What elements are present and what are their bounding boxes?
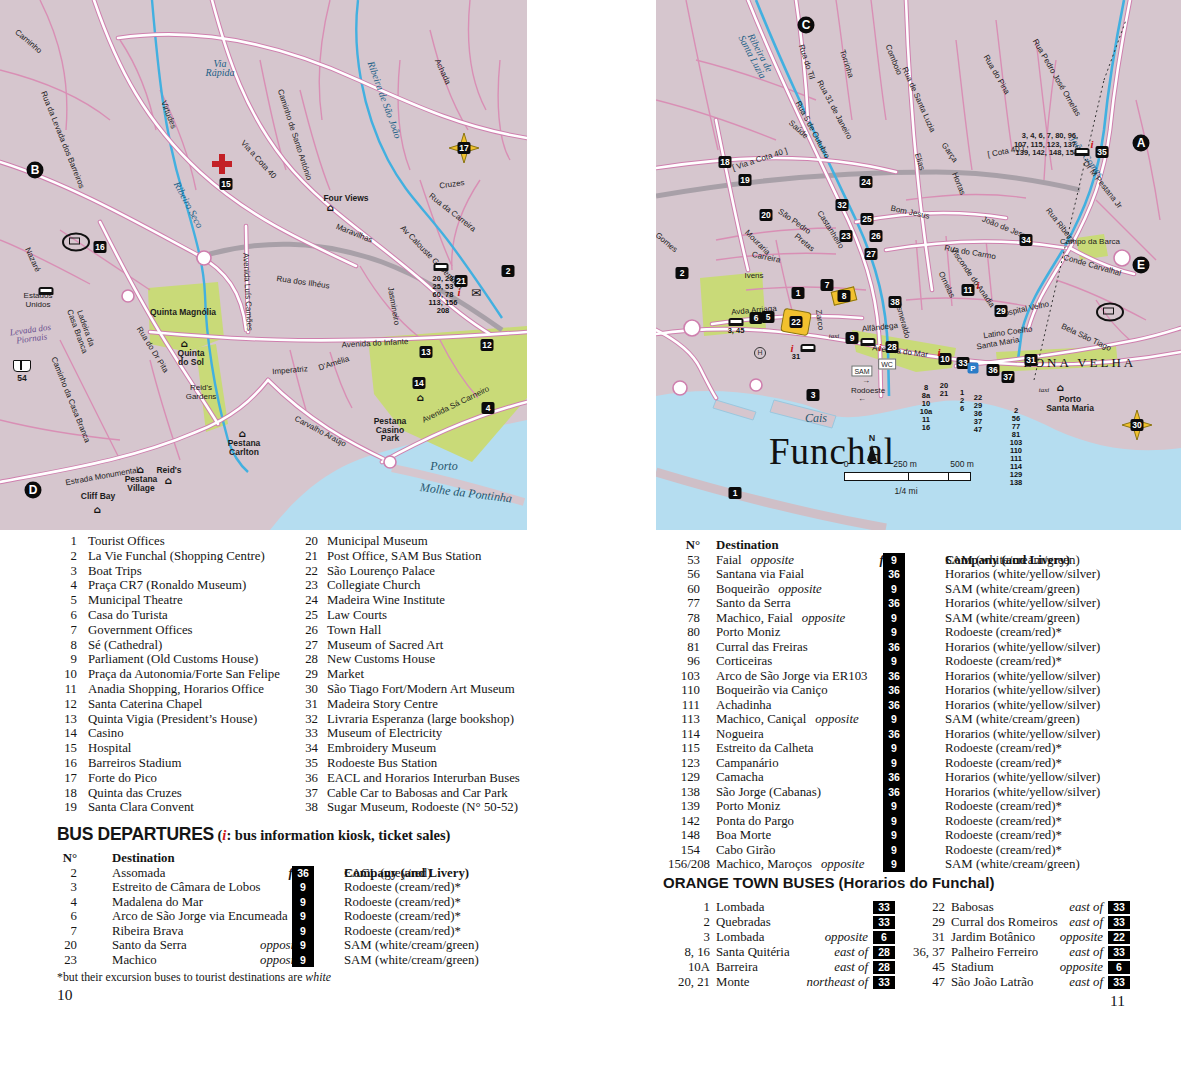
route-number: 31 <box>898 930 945 945</box>
table-row: 31Jardim Botânicoopposite22 <box>898 930 1138 945</box>
subtitle-post: : bus information kiosk, ticket sales) <box>226 827 450 843</box>
bus-departures-title: BUS DEPARTURES <box>57 824 214 844</box>
destination: Barreiraeast of <box>716 960 873 975</box>
table-row: 2Quebradas33 <box>663 915 895 930</box>
stop-badge: 9 <box>883 582 905 597</box>
site-marker: 1 <box>729 487 742 499</box>
site-marker: 8 <box>838 290 851 302</box>
destination: Stadiumopposite <box>951 960 1108 975</box>
table-row: 138São Jorge (Cabanas)36Horarios (white/… <box>668 785 1138 800</box>
site-marker: 13 <box>420 346 433 358</box>
table-row: 53Faialopposite9SAM (white/cream/green) <box>668 553 1138 568</box>
site-marker: 21 <box>455 275 468 287</box>
legend-item: 14Casino <box>57 726 295 741</box>
position-note <box>836 857 883 872</box>
info-kiosk-icon: i <box>1090 139 1093 150</box>
guidebook-spread: { "accent_colors":{"road_casing":"#cf7fa… <box>0 0 1181 1078</box>
route-number: 77 <box>668 596 700 611</box>
legend-number: 27 <box>296 638 318 653</box>
site-marker: 23 <box>840 230 853 242</box>
company-livery: Rodoeste (cream/red)* <box>945 814 1138 829</box>
legend-label: Praça CR7 (Ronaldo Museum) <box>88 578 295 593</box>
route-number: 115 <box>668 741 700 756</box>
legend-number: 33 <box>296 726 318 741</box>
table-row: 60Boqueirãoopposite9SAM (white/cream/gre… <box>668 582 1138 597</box>
table-row: 4Madalena do Mar9Rodoeste (cream/red)* <box>57 895 517 910</box>
table-row: 156/208Machico, Maroçosopposite9SAM (whi… <box>668 857 1138 872</box>
legend-item: 4Praça CR7 (Ronaldo Museum) <box>57 578 295 593</box>
orange-buses-right: 22Babosaseast of3329Curral dos Romeirose… <box>898 900 1138 990</box>
destination: Santo da Serra <box>716 596 836 611</box>
site-marker: 3 <box>807 389 820 401</box>
position-note <box>836 640 883 655</box>
map-west-markers: 1516BD17221i✉1312144⌂⌂⌂⌂⌂⌂⌂ <box>0 0 527 530</box>
route-number: 53 <box>668 553 700 568</box>
site-marker: 9 <box>846 332 859 344</box>
north-arrow <box>867 445 877 461</box>
table-row: 80Porto Moniz9Rodoeste (cream/red)* <box>668 625 1138 640</box>
destination: Curral das Freiras <box>716 640 836 655</box>
legend-label: Town Hall <box>327 623 536 638</box>
legend-number: 17 <box>57 771 77 786</box>
position-note: east of <box>1069 945 1108 960</box>
table-row: 111Achadinha36Horarios (white/yellow/sil… <box>668 698 1138 713</box>
legend-label: Santa Clara Convent <box>88 800 295 815</box>
table-row: 23Machicoopposite9SAM (white/cream/green… <box>57 953 517 968</box>
table-row: 148Boa Morte9Rodoeste (cream/red)* <box>668 828 1138 843</box>
legend-number: 23 <box>296 578 318 593</box>
legend-label: Madeira Story Centre <box>327 697 536 712</box>
legend-number: 26 <box>296 623 318 638</box>
stop-badge: 33 <box>873 901 895 914</box>
site-marker: 14 <box>413 377 426 389</box>
route-number: 20, 21 <box>663 975 710 990</box>
position-note <box>836 712 883 727</box>
legend-label: Embroidery Museum <box>327 741 536 756</box>
legend-item: 38Sugar Museum, Rodoeste (N° 50-52) <box>296 800 536 815</box>
position-note <box>836 625 883 640</box>
legend-item: 8Sé (Cathedral) <box>57 638 295 653</box>
company-livery: Rodoeste (cream/red)* <box>344 880 517 895</box>
route-number: 4 <box>57 895 77 910</box>
bus-rows: 53Faialopposite9SAM (white/cream/green)5… <box>668 553 1138 872</box>
site-marker: 24 <box>860 176 873 188</box>
table-row: 10ABarreiraeast of28 <box>663 960 895 975</box>
destination: Machico <box>112 953 260 968</box>
legend-label: Sé (Cathedral) <box>88 638 295 653</box>
company-livery: Rodoeste (cream/red)* <box>344 895 517 910</box>
info-kiosk-icon: i <box>457 287 460 298</box>
destination: Santana via Faial <box>716 567 836 582</box>
hotel-icon: ⌂ <box>238 429 245 439</box>
position-note <box>836 669 883 684</box>
legend-number: 11 <box>57 682 77 697</box>
legend-item: 36EACL and Horarios Interurban Buses <box>296 771 536 786</box>
position-note <box>260 924 292 939</box>
position-note <box>836 770 883 785</box>
table-row: 3Estreito de Câmara de Lobos9Rodoeste (c… <box>57 880 517 895</box>
legend-item: 13Quinta Vigia (President’s House) <box>57 712 295 727</box>
route-number: 2 <box>57 866 77 881</box>
position-note <box>836 741 883 756</box>
legend-label: Boat Trips <box>88 564 295 579</box>
position-note <box>836 698 883 713</box>
stop-badge: 9 <box>883 828 905 843</box>
destination: Faialopposite <box>716 553 836 568</box>
company-livery: Horarios (white/yellow/silver) <box>945 698 1138 713</box>
route-number: 80 <box>668 625 700 640</box>
site-marker: 26 <box>870 230 883 242</box>
company-livery: SAM (white/cream/green) <box>344 953 517 968</box>
legend-item: 33Museum of Electricity <box>296 726 536 741</box>
route-number: 29 <box>898 915 945 930</box>
legend-label: New Customs House <box>327 652 536 667</box>
table-header-row: N° Destination from Company (and Livery) <box>57 851 517 866</box>
position-note <box>260 895 292 910</box>
company-livery: SAM (white/cream/green) <box>945 553 1138 568</box>
hotel-icon: ⌂ <box>136 465 143 475</box>
stop-badge: 9 <box>883 611 905 626</box>
stop-badge: 28 <box>873 946 895 959</box>
table-row: 123Campanário9Rodoeste (cream/red)* <box>668 756 1138 771</box>
route-number: 154 <box>668 843 700 858</box>
legend-label: Quinta das Cruzes <box>88 786 295 801</box>
hospital-cross-icon <box>212 154 232 174</box>
orange-buses-left: 1Lombada332Quebradas333Lombadaopposite68… <box>663 900 895 990</box>
site-marker: 7 <box>821 279 834 291</box>
legend-number: 16 <box>57 756 77 771</box>
stop-badge: 6 <box>873 931 895 944</box>
legend-number: 20 <box>296 534 318 549</box>
legend-label: Sugar Museum, Rodoeste (N° 50-52) <box>327 800 536 815</box>
stop-badge: 6 <box>1108 961 1130 974</box>
position-note: opposite <box>1060 960 1108 975</box>
legend-item: 28New Customs House <box>296 652 536 667</box>
legend-number: 34 <box>296 741 318 756</box>
stop-badge: 9 <box>292 895 314 910</box>
route-number: 78 <box>668 611 700 626</box>
stop-badge: 36 <box>883 640 905 655</box>
route-number: 36, 37 <box>898 945 945 960</box>
legend-item: 30São Tiago Fort/Modern Art Museum <box>296 682 536 697</box>
route-number: 20 <box>57 938 77 953</box>
company-livery: EACL (grey/red) <box>344 866 517 881</box>
company-livery: Horarios (white/yellow/silver) <box>945 683 1138 698</box>
map-funchal-centre: Ribeira de Santa LuziaRua do TilTorrinha… <box>656 0 1181 530</box>
position-note <box>260 880 292 895</box>
site-marker: 38 <box>889 296 902 308</box>
stop-badge: 33 <box>1108 901 1130 914</box>
legend-label: Cable Car to Babosas and Car Park <box>327 786 536 801</box>
map-funchal-west: CaminhoRua da Levada dos BarreirosVia Rá… <box>0 0 527 530</box>
table-row: 45Stadiumopposite6 <box>898 960 1138 975</box>
stop-badge: 36 <box>883 785 905 800</box>
company-livery: Rodoeste (cream/red)* <box>344 924 517 939</box>
position-note <box>836 843 883 858</box>
legend-item: 27Museum of Sacred Art <box>296 638 536 653</box>
legend-item: 24Madeira Wine Institute <box>296 593 536 608</box>
stop-badge: 33 <box>873 916 895 929</box>
fort-star-icon: 30 <box>1122 410 1152 440</box>
site-marker: 1 <box>792 287 805 299</box>
scale-bar <box>844 472 971 481</box>
company-livery: Rodoeste (cream/red)* <box>945 625 1138 640</box>
company-livery: Rodoeste (cream/red)* <box>945 843 1138 858</box>
stop-badge: 9 <box>292 909 314 924</box>
position-note: opposite <box>260 953 292 968</box>
hotel-icon: ⌂ <box>416 393 423 403</box>
legend-label: Livraria Esperanza (large bookshop) <box>327 712 536 727</box>
stop-badge: 36 <box>883 669 905 684</box>
destination: Cabo Girão <box>716 843 836 858</box>
grid-letter-marker: D <box>25 482 42 499</box>
legend-label: Casa do Turista <box>88 608 295 623</box>
legend-label: Barreiros Stadium <box>88 756 295 771</box>
stop-badge: 9 <box>883 799 905 814</box>
info-kiosk-icon: i <box>976 280 979 291</box>
destination: Palheiro Ferreiroeast of <box>951 945 1108 960</box>
site-marker: 34 <box>1020 234 1033 246</box>
position-note: east of <box>1069 900 1108 915</box>
legend-label: Law Courts <box>327 608 536 623</box>
col-no: N° <box>57 851 77 866</box>
parking-icon: P <box>968 363 979 374</box>
destination: Machico, Faialopposite <box>716 611 836 626</box>
stop-badge: 9 <box>883 857 905 872</box>
table-row: 96Corticeiras9Rodoeste (cream/red)* <box>668 654 1138 669</box>
bus-stop-icon <box>39 287 54 295</box>
hotel-icon: ⌂ <box>93 505 100 515</box>
legend-label: La Vie Funchal (Shopping Centre) <box>88 549 295 564</box>
table-row: 7Ribeira Brava9Rodoeste (cream/red)* <box>57 924 517 939</box>
stop-badge: 9 <box>883 654 905 669</box>
route-number: 6 <box>57 909 77 924</box>
route-number: 139 <box>668 799 700 814</box>
company-livery: Rodoeste (cream/red)* <box>945 799 1138 814</box>
legend-item: 26Town Hall <box>296 623 536 638</box>
library-icon <box>13 360 31 372</box>
destination: Nogueira <box>716 727 836 742</box>
destination: Madalena do Mar <box>112 895 260 910</box>
stop-badge: 9 <box>883 553 905 568</box>
legend-number: 30 <box>296 682 318 697</box>
stop-badge: 36 <box>883 770 905 785</box>
info-kiosk-icon: i <box>937 347 940 358</box>
post-office-icon: ✉ <box>471 287 481 299</box>
legend-item: 6Casa do Turista <box>57 608 295 623</box>
legend-number: 6 <box>57 608 77 623</box>
site-marker: 2 <box>676 267 689 279</box>
legend-label: Hospital <box>88 741 295 756</box>
site-marker: 27 <box>865 248 878 260</box>
legend-label: Santa Caterina Chapel <box>88 697 295 712</box>
company-livery: SAM (white/cream/green) <box>945 712 1138 727</box>
position-note <box>836 785 883 800</box>
hotel-icon: ⌂ <box>326 203 333 213</box>
legend-number: 36 <box>296 771 318 786</box>
legend-number: 35 <box>296 756 318 771</box>
legend-item: 22São Lourenço Palace <box>296 564 536 579</box>
legend-number: 37 <box>296 786 318 801</box>
legend-number: 2 <box>57 549 77 564</box>
legend-label: Market <box>327 667 536 682</box>
destination: Lombada <box>716 900 873 915</box>
bus-stop-icon <box>1075 148 1090 156</box>
map-centre-markers: CAE18192032242523262734i3521783822659i28… <box>656 0 1181 530</box>
legend-label: Collegiate Church <box>327 578 536 593</box>
info-kiosk-icon: i <box>790 343 793 354</box>
destination: Camacha <box>716 770 836 785</box>
legend-number: 28 <box>296 652 318 667</box>
position-note: opposite <box>751 553 794 567</box>
site-marker: 15 <box>220 178 233 190</box>
legend-item: 10Praça da Autonomia/Forte San Felipe <box>57 667 295 682</box>
table-row: 78Machico, Faialopposite9SAM (white/crea… <box>668 611 1138 626</box>
company-livery: Horarios (white/yellow/silver) <box>945 770 1138 785</box>
bus-departures-table: N° Destination from Company (and Livery)… <box>57 851 517 967</box>
route-number: 129 <box>668 770 700 785</box>
legend-label: Casino <box>88 726 295 741</box>
bus-rows: 2Assomada36EACL (grey/red)3Estreito de C… <box>57 866 517 968</box>
table-row: 110Boqueirão via Caniço36Horarios (white… <box>668 683 1138 698</box>
destination: Achadinha <box>716 698 836 713</box>
route-number: 81 <box>668 640 700 655</box>
legend-label: São Lourenço Palace <box>327 564 536 579</box>
table-header-row: N° Destination from Company (and Livery) <box>668 538 1138 553</box>
legend-item: 25Law Courts <box>296 608 536 623</box>
destination: Corticeiras <box>716 654 836 669</box>
destination: Machico, Caniçalopposite <box>716 712 836 727</box>
destination: Assomada <box>112 866 260 881</box>
stop-badge: 36 <box>883 698 905 713</box>
legend-number: 13 <box>57 712 77 727</box>
table-row: 103Arco de São Jorge via ER10336Horarios… <box>668 669 1138 684</box>
footnote-emphasis: white <box>305 970 331 984</box>
stop-badge: 22 <box>1108 931 1130 944</box>
grid-letter-marker: A <box>1133 135 1150 152</box>
legend-column-1: 1Tourist Offices2La Vie Funchal (Shoppin… <box>57 534 295 815</box>
company-livery: SAM (white/cream/green) <box>344 938 517 953</box>
destination: Curral dos Romeiroseast of <box>951 915 1108 930</box>
legend-label: Tourist Offices <box>88 534 295 549</box>
stop-badge: 36 <box>883 683 905 698</box>
route-number: 156/208 <box>668 857 700 872</box>
route-number: 8, 16 <box>663 945 710 960</box>
company-livery: SAM (white/cream/green) <box>945 582 1138 597</box>
legend-item: 35Rodoeste Bus Station <box>296 756 536 771</box>
site-marker: 17 <box>458 142 471 154</box>
table-row: 113Machico, Caniçalopposite9SAM (white/c… <box>668 712 1138 727</box>
route-number: 3 <box>57 880 77 895</box>
table-row: 47São João Latrãoeast of33 <box>898 975 1138 990</box>
legend-number: 3 <box>57 564 77 579</box>
stop-badge: 9 <box>883 814 905 829</box>
table-row: 77Santo da Serra36Horarios (white/yellow… <box>668 596 1138 611</box>
legend-item: 17Forte do Pico <box>57 771 295 786</box>
table-row: 142Ponta do Pargo9Rodoeste (cream/red)* <box>668 814 1138 829</box>
legend-number: 25 <box>296 608 318 623</box>
stop-badge: 9 <box>292 880 314 895</box>
position-note <box>836 683 883 698</box>
table-row: 1Lombada33 <box>663 900 895 915</box>
site-marker: 11 <box>962 284 975 296</box>
company-livery: Horarios (white/yellow/silver) <box>945 727 1138 742</box>
destination: Jardim Botânicoopposite <box>951 930 1108 945</box>
table-row: 154Cabo Girão9Rodoeste (cream/red)* <box>668 843 1138 858</box>
site-marker: 5 <box>762 311 775 323</box>
col-no: N° <box>668 538 700 553</box>
table-row: 8, 16Santa Quitériaeast of28 <box>663 945 895 960</box>
route-number: 3 <box>663 930 710 945</box>
destination: Santa Quitériaeast of <box>716 945 873 960</box>
stop-badge: 9 <box>292 938 314 953</box>
legend-number: 1 <box>57 534 77 549</box>
hotel-marker: H <box>754 347 766 359</box>
site-marker: 20 <box>760 209 773 221</box>
company-livery: Rodoeste (cream/red)* <box>945 756 1138 771</box>
position-note <box>260 909 292 924</box>
bus-stop-icon <box>434 263 449 271</box>
stop-badge: 28 <box>873 961 895 974</box>
destination: Montenortheast of <box>716 975 873 990</box>
position-note <box>836 654 883 669</box>
destination: Boqueirãoopposite <box>716 582 836 597</box>
company-livery: SAM (white/cream/green) <box>945 611 1138 626</box>
site-marker: 31 <box>1025 354 1038 366</box>
legend-number: 5 <box>57 593 77 608</box>
legend-number: 38 <box>296 800 318 815</box>
route-number: 60 <box>668 582 700 597</box>
legend-label: Rodoeste Bus Station <box>327 756 536 771</box>
position-note: east of <box>1069 975 1108 990</box>
legend-item: 5Municipal Theatre <box>57 593 295 608</box>
legend-label: Museum of Sacred Art <box>327 638 536 653</box>
route-number: 23 <box>57 953 77 968</box>
table-row: 36, 37Palheiro Ferreiroeast of33 <box>898 945 1138 960</box>
route-number: 110 <box>668 683 700 698</box>
col-destination: Destination <box>716 538 836 553</box>
legend-label: Municipal Museum <box>327 534 536 549</box>
legend-label: Museum of Electricity <box>327 726 536 741</box>
legend-item: 1Tourist Offices <box>57 534 295 549</box>
stop-badge: 33 <box>1108 976 1130 989</box>
position-note <box>836 727 883 742</box>
legend-item: 3Boat Trips <box>57 564 295 579</box>
route-number: 142 <box>668 814 700 829</box>
legend-number: 7 <box>57 623 77 638</box>
destination: Santo da Serra <box>112 938 260 953</box>
stop-badge: 9 <box>883 843 905 858</box>
destination: Boqueirão via Caniço <box>716 683 836 698</box>
position-note <box>836 828 883 843</box>
legend-number: 15 <box>57 741 77 756</box>
legend-item: 18Quinta das Cruzes <box>57 786 295 801</box>
col-destination: Destination <box>112 851 260 866</box>
legend-item: 21Post Office, SAM Bus Station <box>296 549 536 564</box>
route-number: 138 <box>668 785 700 800</box>
stop-badge: 33 <box>1108 946 1130 959</box>
destination: Boa Morte <box>716 828 836 843</box>
company-livery: SAM (white/cream/green) <box>945 857 1138 872</box>
route-number: 113 <box>668 712 700 727</box>
route-number: 7 <box>57 924 77 939</box>
legend-item: 7Government Offices <box>57 623 295 638</box>
position-note <box>836 582 883 597</box>
stop-badge: 9 <box>883 712 905 727</box>
position-note: east of <box>1069 915 1108 930</box>
route-number: 47 <box>898 975 945 990</box>
company-livery: Horarios (white/yellow/silver) <box>945 640 1138 655</box>
